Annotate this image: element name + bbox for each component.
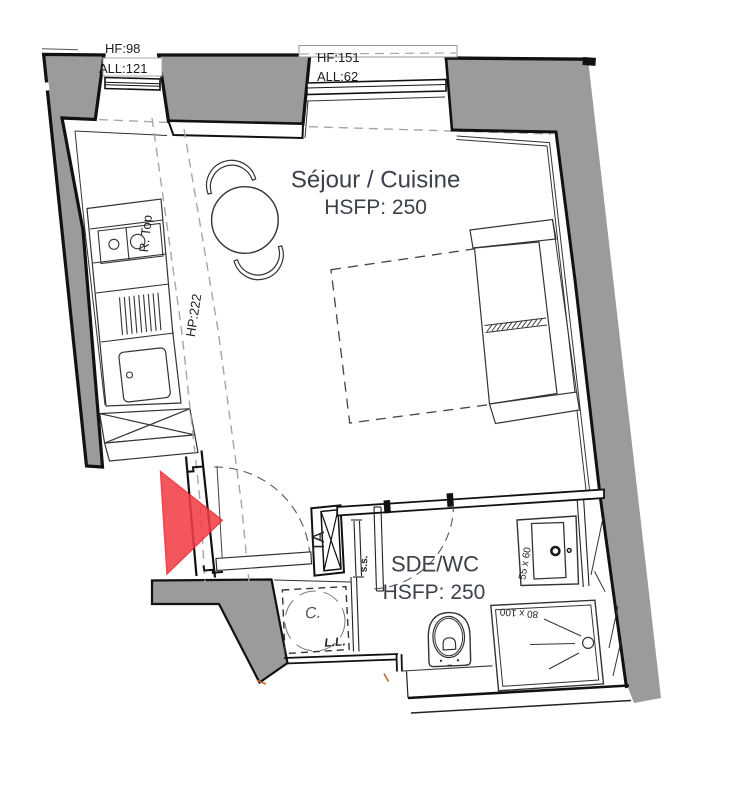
svg-text:HSFP: 250: HSFP: 250 [383, 581, 486, 604]
svg-text:SDE/WC: SDE/WC [391, 552, 479, 577]
svg-text:ALL:121: ALL:121 [99, 61, 147, 76]
svg-text:TA: TA [309, 531, 328, 552]
svg-text:HF:98: HF:98 [105, 41, 140, 56]
svg-text:Séjour / Cuisine: Séjour / Cuisine [291, 167, 460, 194]
svg-text:HF:151: HF:151 [317, 50, 360, 65]
svg-text:s.s.: s.s. [359, 555, 371, 572]
svg-text:HSFP: 250: HSFP: 250 [324, 196, 427, 219]
svg-text:C.: C. [304, 604, 321, 622]
svg-text:L.L.: L.L. [324, 634, 346, 649]
